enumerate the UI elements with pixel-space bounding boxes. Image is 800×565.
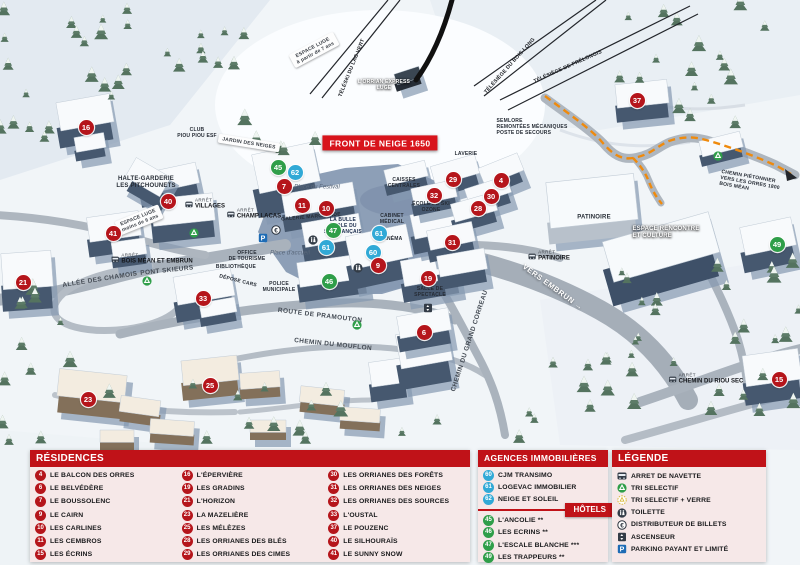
map-marker-47: 47 bbox=[326, 223, 341, 238]
bus-icon bbox=[617, 471, 627, 481]
legend-item-label: ARRET DE NAVETTE bbox=[631, 473, 701, 480]
bus-stop-text: ARRÊTPATINOIRE bbox=[538, 250, 570, 261]
marker-dot: 40 bbox=[328, 536, 339, 547]
legend-item-residence: 7LE BOUSSOLENC bbox=[30, 495, 177, 508]
legend-item-residence: 16L'ÉPERVIÈRE bbox=[177, 469, 324, 482]
bus-icon bbox=[528, 252, 536, 260]
map-marker-61: 61 bbox=[372, 226, 387, 241]
legend-item-label: L'ANCOLIE ** bbox=[498, 517, 543, 524]
map-label: BIBLIOTHÈQUE bbox=[216, 264, 256, 270]
marker-dot: 21 bbox=[182, 496, 193, 507]
map-label: CLUB PIOU PIOU ESF bbox=[177, 127, 217, 139]
toilet-icon bbox=[308, 235, 318, 245]
map-marker-15: 15 bbox=[772, 372, 787, 387]
legend-item-legende: TOILETTE bbox=[612, 507, 766, 519]
map-label: Place d'accueil bbox=[270, 250, 310, 257]
legend-item-residence: 33L'OUSTAL bbox=[323, 509, 470, 522]
map-label: SEMLORE REMONTÉES MÉCANIQUES POSTE DE SE… bbox=[497, 118, 568, 136]
map-marker-45: 45 bbox=[271, 160, 286, 175]
marker-dot: 7 bbox=[35, 496, 46, 507]
map-marker-25: 25 bbox=[203, 378, 218, 393]
map-marker-11: 11 bbox=[295, 198, 310, 213]
legend-item-residence: 23LA MAZELIÈRE bbox=[177, 509, 324, 522]
map-label: CAISSES CENTRALES bbox=[388, 177, 420, 189]
bus-stop-name: PATINOIRE bbox=[538, 255, 570, 262]
legend-item-label: LA MAZELIÈRE bbox=[197, 512, 249, 519]
bus-stop: ARRÊTCHAMP LACAS bbox=[227, 208, 281, 219]
marker-dot: 31 bbox=[328, 483, 339, 494]
svg-text:P: P bbox=[261, 236, 266, 243]
bus-icon bbox=[111, 255, 119, 263]
legend-item-residence: 6LE BELVÉDÈRE bbox=[30, 482, 177, 495]
legend-item-label: LES ORRIANES DES SOURCES bbox=[343, 498, 449, 505]
bus-stop-name: CHEMIN DU RIOU SEC bbox=[679, 378, 744, 385]
atm-icon: € bbox=[271, 225, 281, 235]
map-marker-7: 7 bbox=[277, 179, 292, 194]
recycle-icon bbox=[142, 276, 152, 286]
legend-item-agence: 61LOGEVAC IMMOBILIER bbox=[478, 481, 608, 493]
legend-item-label: LES GRADINS bbox=[197, 485, 245, 492]
map-label: ÉCOLE DE SKI OZONE bbox=[412, 201, 450, 213]
legend-item-label: CJM TRANSIMO bbox=[498, 472, 552, 479]
marker-dot: 46 bbox=[483, 527, 494, 538]
legend-item-residence: 10LES CARLINES bbox=[30, 522, 177, 535]
marker-dot: 60 bbox=[483, 470, 494, 481]
legend-item-hotel: 47L'ESCALE BLANCHE *** bbox=[478, 539, 608, 551]
legend-item-label: L'ESCALE BLANCHE *** bbox=[498, 542, 579, 549]
legend-item-residence: 31LES ORRIANES DES NEIGES bbox=[323, 482, 470, 495]
map-marker-4: 4 bbox=[494, 173, 509, 188]
svg-text:€: € bbox=[274, 227, 278, 234]
residences-panel: RÉSIDENCES 4LE BALCON DES ORRES6LE BELVÉ… bbox=[30, 450, 470, 562]
legend-item-residence: 28LES ORRIANES DES BLÉS bbox=[177, 535, 324, 548]
bus-stop: ARRÊTCHEMIN DU RIOU SEC bbox=[669, 373, 744, 384]
bus-icon bbox=[227, 210, 235, 218]
marker-dot: 16 bbox=[182, 470, 193, 481]
legend-item-residence: 41LE SUNNY SNOW bbox=[323, 548, 470, 561]
legend-item-label: TOILETTE bbox=[631, 509, 665, 516]
marker-dot: 37 bbox=[328, 523, 339, 534]
map-marker-32: 32 bbox=[427, 188, 442, 203]
marker-dot: 11 bbox=[35, 536, 46, 547]
legend-item-residence: 25LES MÉLÈZES bbox=[177, 522, 324, 535]
legend-item-label: LE SILHOURAÏS bbox=[343, 538, 397, 545]
map-marker-30: 30 bbox=[484, 189, 499, 204]
legend-item-label: PARKING PAYANT ET LIMITÉ bbox=[631, 546, 728, 553]
agences-panel: AGENCES IMMOBILIÈRES 60CJM TRANSIMO61LOG… bbox=[478, 450, 608, 562]
legende-header: LÉGENDE bbox=[612, 450, 766, 467]
bus-stop-text: ARRÊTCHEMIN DU RIOU SEC bbox=[679, 373, 744, 384]
legend-item-label: LES ORRIANES DES NEIGES bbox=[343, 485, 441, 492]
recycle-icon bbox=[189, 228, 199, 238]
bus-stop: ARRÊTVILLAGES bbox=[185, 198, 225, 209]
bus-stop: ARRÊTPATINOIRE bbox=[528, 250, 570, 261]
marker-dot: 4 bbox=[35, 470, 46, 481]
legend-item-label: LES TRAPPEURS ** bbox=[498, 554, 565, 561]
legend-item-legende: TRI SELECTIF bbox=[612, 482, 766, 494]
legend-item-label: LE BELVÉDÈRE bbox=[50, 485, 103, 492]
map-marker-21: 21 bbox=[16, 275, 31, 290]
legend-item-label: LES ORRIANES DES BLÉS bbox=[197, 538, 287, 545]
map-marker-62: 62 bbox=[288, 165, 303, 180]
legend-item-label: TRI SELECTIF bbox=[631, 485, 679, 492]
marker-dot: 47 bbox=[483, 540, 494, 551]
marker-dot: 25 bbox=[182, 523, 193, 534]
map-label: ESPACE RENCONTRE ET CULTURE bbox=[632, 226, 699, 240]
legend-item-legende: ASCENSEUR bbox=[612, 531, 766, 543]
legend-item-label: LES ECRINS ** bbox=[498, 529, 548, 536]
recycle-glass-icon bbox=[617, 495, 627, 505]
map-marker-61: 61 bbox=[319, 240, 334, 255]
marker-dot: 28 bbox=[182, 536, 193, 547]
legend-item-label: LE CAIRN bbox=[50, 512, 83, 519]
marker-dot: 45 bbox=[483, 515, 494, 526]
residences-column: 16L'ÉPERVIÈRE19LES GRADINS21L'HORIZON23L… bbox=[177, 469, 324, 561]
map-marker-46: 46 bbox=[322, 274, 337, 289]
marker-dot: 15 bbox=[35, 549, 46, 560]
recycle-icon bbox=[713, 151, 723, 161]
marker-dot: 33 bbox=[328, 510, 339, 521]
map-marker-28: 28 bbox=[471, 201, 486, 216]
legende-list: ARRET DE NAVETTETRI SELECTIFTRI SELECTIF… bbox=[612, 467, 766, 555]
legend-item-label: LES ORRIANES DES FORÊTS bbox=[343, 472, 443, 479]
elevator-icon bbox=[423, 303, 433, 313]
legend-item-label: LES CARLINES bbox=[50, 525, 102, 532]
bus-stop-name: VILLAGES bbox=[195, 203, 225, 210]
legend-item-label: L'ÉPERVIÈRE bbox=[197, 472, 243, 479]
legend-item-residence: 11LES CEMBROS bbox=[30, 535, 177, 548]
legend-item-label: LES ORRIANES DES CIMES bbox=[197, 551, 291, 558]
map-marker-19: 19 bbox=[421, 271, 436, 286]
legend-item-residence: 32LES ORRIANES DES SOURCES bbox=[323, 495, 470, 508]
bus-stop: ARRÊTBOIS MÉAN ET EMBRUN bbox=[111, 253, 192, 264]
legend-item-legende: €DISTRIBUTEUR DE BILLETS bbox=[612, 519, 766, 531]
map-label: L'ORRIAN EXPRESS LUGE bbox=[358, 79, 410, 91]
legend-item-label: NEIGE ET SOLEIL bbox=[498, 496, 558, 503]
parking-icon: P bbox=[617, 544, 627, 554]
resort-map-page: ESPACE LUGE à partir de 7 ansTÉLÉSKI DU … bbox=[0, 0, 800, 565]
map-marker-40: 40 bbox=[161, 194, 176, 209]
bus-icon bbox=[669, 375, 677, 383]
atm-icon: € bbox=[617, 520, 627, 530]
marker-dot: 32 bbox=[328, 496, 339, 507]
residences-column: 4LE BALCON DES ORRES6LE BELVÉDÈRE7LE BOU… bbox=[30, 469, 177, 561]
residences-list: 4LE BALCON DES ORRES6LE BELVÉDÈRE7LE BOU… bbox=[30, 467, 470, 561]
recycle-icon bbox=[617, 483, 627, 493]
legend-item-label: L'OUSTAL bbox=[343, 512, 377, 519]
svg-text:€: € bbox=[620, 522, 624, 529]
map-label: FRONT DE NEIGE 1650 bbox=[322, 135, 437, 150]
bus-stop-text: ARRÊTCHAMP LACAS bbox=[237, 208, 281, 219]
legend-item-label: LES MÉLÈZES bbox=[197, 525, 246, 532]
marker-dot: 9 bbox=[35, 510, 46, 521]
map-marker-37: 37 bbox=[630, 93, 645, 108]
marker-dot: 6 bbox=[35, 483, 46, 494]
legend-item-residence: 19LES GRADINS bbox=[177, 482, 324, 495]
agences-header: AGENCES IMMOBILIÈRES bbox=[478, 450, 608, 467]
legend-item-hotel: 49LES TRAPPEURS ** bbox=[478, 551, 608, 563]
marker-dot: 10 bbox=[35, 523, 46, 534]
hotels-divider: HÔTELS bbox=[478, 509, 608, 511]
marker-dot: 61 bbox=[483, 482, 494, 493]
residences-column: 30LES ORRIANES DES FORÊTS31LES ORRIANES … bbox=[323, 469, 470, 561]
map-label: HALTE-GARDERIE LES PITCHOUNETS bbox=[116, 176, 175, 190]
legend-item-label: L'HORIZON bbox=[197, 498, 235, 505]
map-marker-41: 41 bbox=[106, 226, 121, 241]
map-label: LAVERIE bbox=[455, 151, 478, 157]
map-marker-29: 29 bbox=[446, 172, 461, 187]
parking-icon: P bbox=[258, 233, 268, 243]
svg-text:P: P bbox=[620, 547, 625, 554]
legend-item-label: LE BALCON DES ORRES bbox=[50, 472, 134, 479]
marker-dot: 30 bbox=[328, 470, 339, 481]
recycle-icon bbox=[352, 320, 362, 330]
legend-item-legende: TRI SELECTIF + VERRE bbox=[612, 494, 766, 506]
legend-item-label: LE BOUSSOLENC bbox=[50, 498, 110, 505]
legend-item-label: LES CEMBROS bbox=[50, 538, 102, 545]
marker-dot: 49 bbox=[483, 552, 494, 563]
legend-item-residence: 30LES ORRIANES DES FORÊTS bbox=[323, 469, 470, 482]
bus-stop-text: ARRÊTVILLAGES bbox=[195, 198, 225, 209]
map-label: Place du Festival bbox=[294, 184, 340, 191]
marker-dot: 29 bbox=[182, 549, 193, 560]
bus-stop-name: CHAMP LACAS bbox=[237, 213, 281, 220]
legend-item-label: ASCENSEUR bbox=[631, 534, 675, 541]
residences-header: RÉSIDENCES bbox=[30, 450, 470, 467]
map-marker-33: 33 bbox=[196, 291, 211, 306]
legend-item-residence: 37LE POUZENC bbox=[323, 522, 470, 535]
hotels-list: 45L'ANCOLIE **46LES ECRINS **47L'ESCALE … bbox=[478, 513, 608, 564]
legend-item-label: DISTRIBUTEUR DE BILLETS bbox=[631, 521, 727, 528]
map-marker-49: 49 bbox=[770, 237, 785, 252]
legend-item-hotel: 46LES ECRINS ** bbox=[478, 527, 608, 539]
legend-item-label: LOGEVAC IMMOBILIER bbox=[498, 484, 576, 491]
map-marker-31: 31 bbox=[445, 235, 460, 250]
marker-dot: 23 bbox=[182, 510, 193, 521]
toilet-icon bbox=[353, 263, 363, 273]
map-marker-6: 6 bbox=[417, 325, 432, 340]
bus-icon bbox=[185, 200, 193, 208]
legend-item-legende: PPARKING PAYANT ET LIMITÉ bbox=[612, 543, 766, 555]
hotels-tag: HÔTELS bbox=[565, 503, 615, 517]
map-label: POLICE MUNICIPALE bbox=[263, 281, 296, 293]
toilet-icon bbox=[617, 508, 627, 518]
map-label: OFFICE DE TOURISME bbox=[229, 250, 266, 262]
map-label: CABINET MÉDICAL bbox=[380, 213, 404, 225]
legend-item-residence: 4LE BALCON DES ORRES bbox=[30, 469, 177, 482]
legend-item-agence: 60CJM TRANSIMO bbox=[478, 469, 608, 481]
map-marker-9: 9 bbox=[371, 258, 386, 273]
legend-item-label: LE SUNNY SNOW bbox=[343, 551, 402, 558]
legend-item-residence: 21L'HORIZON bbox=[177, 495, 324, 508]
map-marker-16: 16 bbox=[79, 120, 94, 135]
legend-item-label: LE POUZENC bbox=[343, 525, 388, 532]
legend-item-label: TRI SELECTIF + VERRE bbox=[631, 497, 711, 504]
marker-dot: 19 bbox=[182, 483, 193, 494]
legend-item-residence: 40LE SILHOURAÏS bbox=[323, 535, 470, 548]
marker-dot: 41 bbox=[328, 549, 339, 560]
legend-item-residence: 15LES ÉCRINS bbox=[30, 548, 177, 561]
map-marker-10: 10 bbox=[319, 201, 334, 216]
bus-stop-name: BOIS MÉAN ET EMBRUN bbox=[121, 258, 192, 265]
elevator-icon bbox=[617, 532, 627, 542]
legend-item-legende: ARRET DE NAVETTE bbox=[612, 470, 766, 482]
legende-panel: LÉGENDE ARRET DE NAVETTETRI SELECTIFTRI … bbox=[612, 450, 766, 562]
legend-item-residence: 29LES ORRIANES DES CIMES bbox=[177, 548, 324, 561]
marker-dot: 62 bbox=[483, 494, 494, 505]
legend-item-residence: 9LE CAIRN bbox=[30, 509, 177, 522]
agences-list: 60CJM TRANSIMO61LOGEVAC IMMOBILIER62NEIG… bbox=[478, 467, 608, 506]
map-marker-23: 23 bbox=[81, 392, 96, 407]
map-label: SALLE DE SPECTACLE bbox=[414, 286, 446, 298]
legend-item-label: LES ÉCRINS bbox=[50, 551, 92, 558]
map-label: PATINOIRE bbox=[577, 214, 611, 221]
bus-stop-text: ARRÊTBOIS MÉAN ET EMBRUN bbox=[121, 253, 192, 264]
